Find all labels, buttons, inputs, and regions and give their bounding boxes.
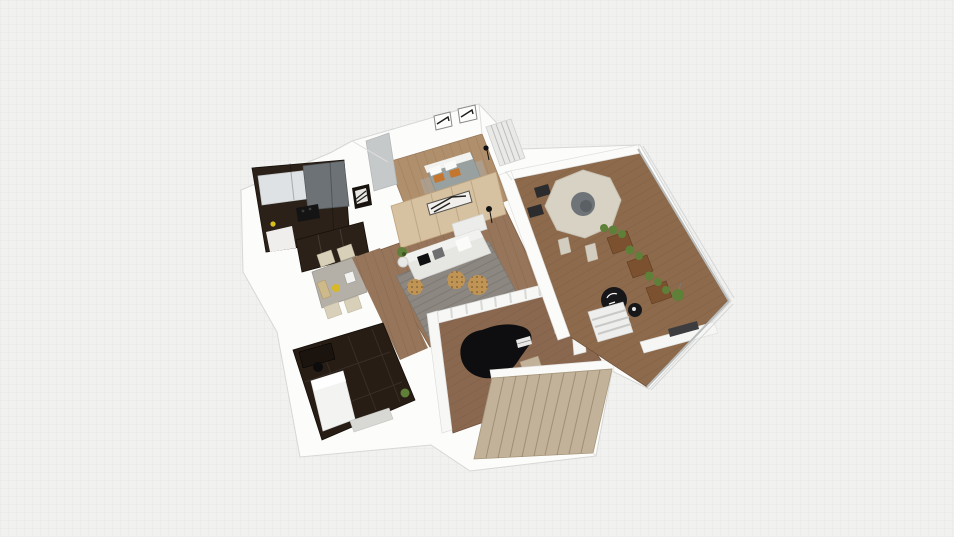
ottoman-detail: [632, 307, 636, 311]
burner-dot: [309, 208, 312, 211]
kitchen-counter[interactable]: [303, 161, 349, 210]
table-center-decor-dark: [580, 200, 592, 212]
office-chair[interactable]: [313, 362, 323, 372]
lamp-shade: [483, 145, 488, 150]
hanging-plant-foliage: [672, 289, 684, 301]
lemon-bowl: [270, 221, 275, 226]
burner-dot: [302, 210, 305, 213]
pouf-spots: [468, 275, 488, 295]
potted-plant[interactable]: [401, 389, 410, 398]
plant-shadow: [402, 252, 406, 256]
pouf-spots: [447, 271, 465, 289]
pouf-spots: [407, 279, 423, 295]
side-table: [398, 257, 408, 267]
hall-wall-art[interactable]: [352, 184, 372, 209]
staircase[interactable]: [474, 360, 614, 459]
floorplan-3d-viewport[interactable]: [0, 0, 954, 537]
lamp-shade: [486, 206, 492, 212]
potted-plant: [397, 247, 407, 257]
yellow-plate: [332, 284, 340, 292]
